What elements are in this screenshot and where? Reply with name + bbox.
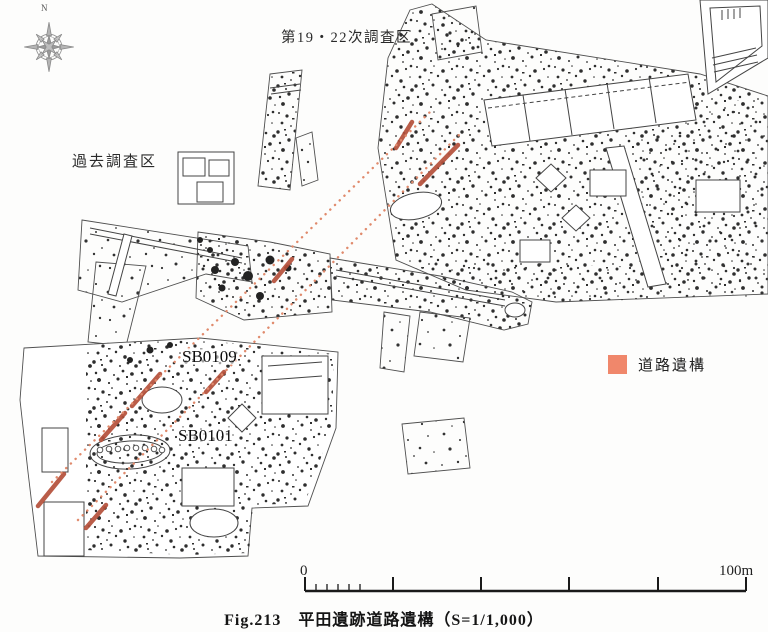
figure-caption: Fig.213 平田遺跡道路遺構（S=1/1,000）: [0, 606, 768, 630]
compass-rose-icon: [13, 11, 85, 83]
feature-label-sb0109: SB0109: [181, 348, 238, 365]
area-label-past-survey: 過去調査区: [72, 155, 157, 170]
area-label-survey-19-22: 第19・22次調査区: [281, 31, 412, 46]
legend-road-swatch: [608, 355, 627, 374]
site-map-drawing: [0, 0, 768, 632]
legend-road-label: 道路遺構: [638, 354, 706, 375]
legend: 道路遺構: [608, 354, 706, 375]
scale-bar-start-label: 0: [300, 564, 308, 579]
scale-bar: [305, 577, 746, 591]
scale-bar-end-label: 100m: [719, 564, 753, 579]
compass-north-label: N: [41, 4, 48, 13]
feature-label-sb0101: SB0101: [177, 427, 234, 444]
